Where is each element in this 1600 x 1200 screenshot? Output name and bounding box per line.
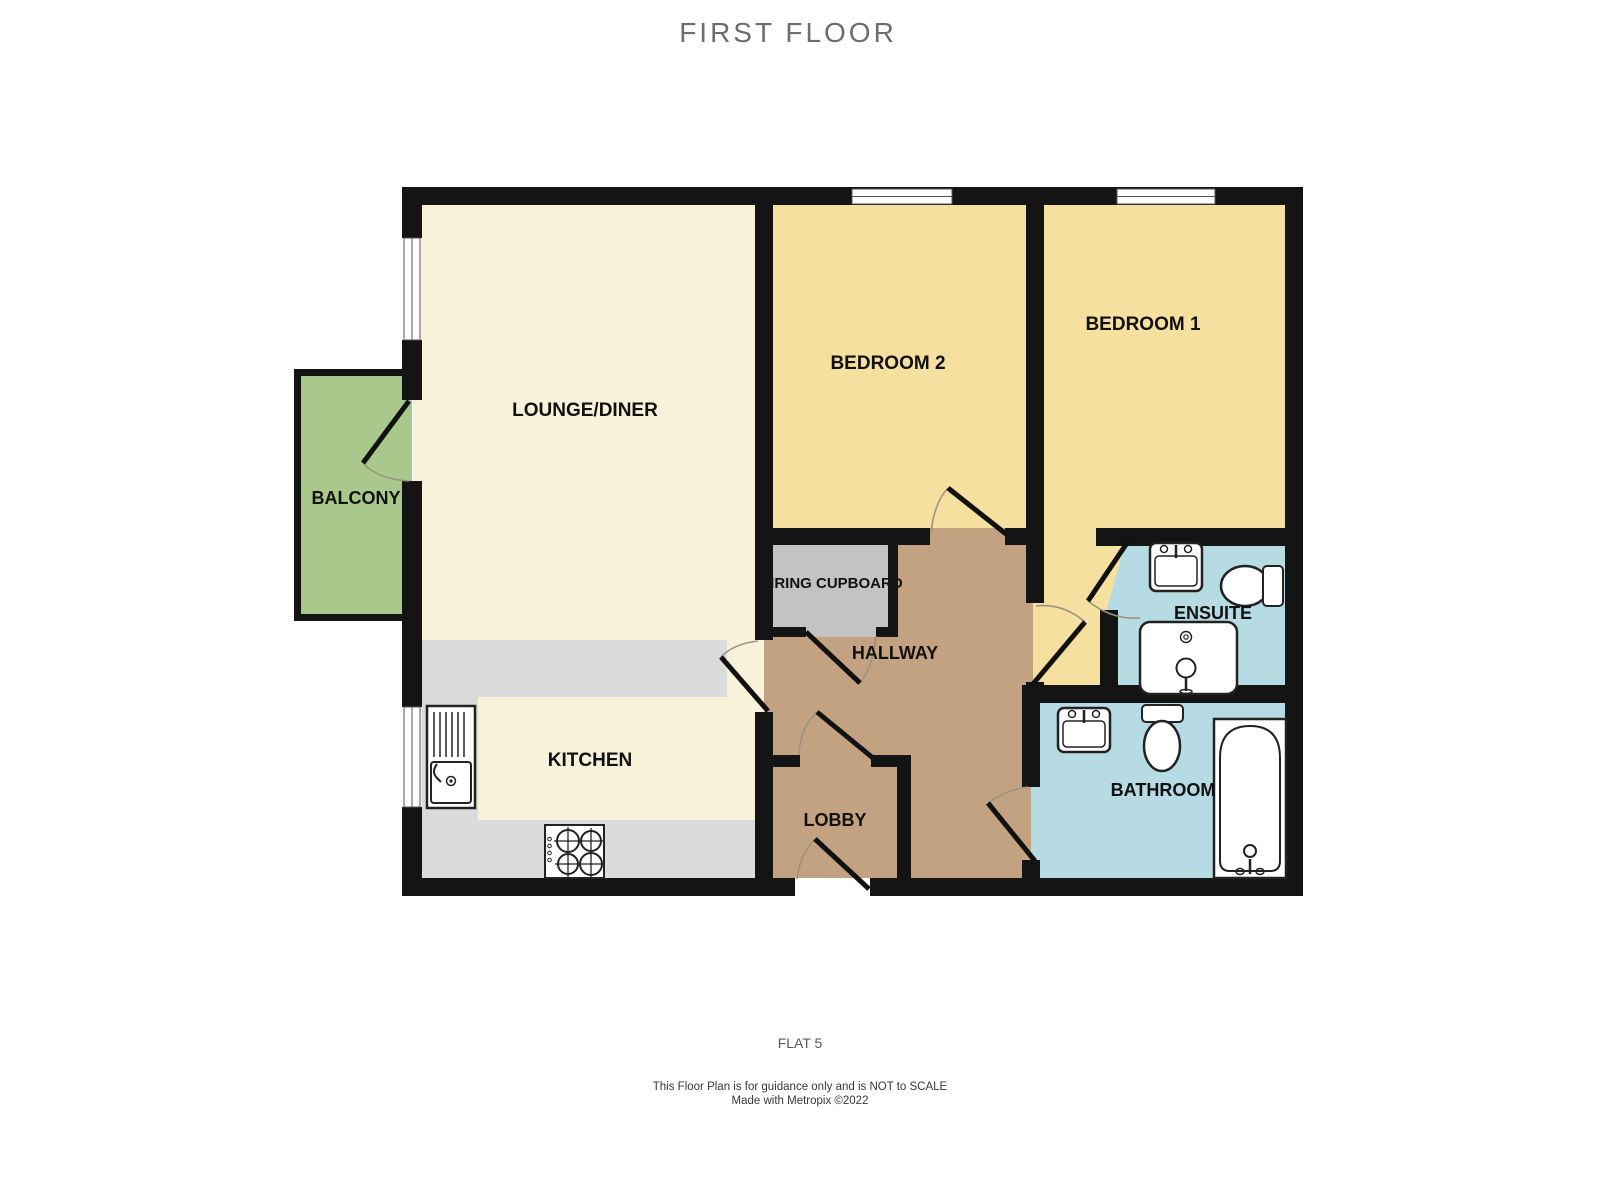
wall-bottom-left (402, 878, 795, 896)
room-label-ensuite: ENSUITE (1174, 603, 1252, 623)
kitchen-window (404, 707, 420, 807)
wall-kitchen-lobby (755, 712, 773, 878)
room-label-balcony: BALCONY (312, 488, 401, 508)
ensuite-toilet-icon (1221, 566, 1283, 606)
wall-cupboard-bottom-right (876, 627, 898, 637)
lounge-window (404, 238, 420, 340)
room-label-lounge: LOUNGE/DINER (512, 400, 658, 421)
ensuite-sink-icon (1150, 543, 1202, 591)
kitchen-sink-icon (427, 706, 475, 808)
wall-bottom-right (870, 878, 1303, 896)
room-label-lobby: LOBBY (804, 810, 867, 830)
bathroom-toilet-icon (1142, 705, 1183, 771)
wall-left-2 (402, 340, 422, 400)
bedroom1-window (1117, 189, 1215, 204)
bathtub-icon (1214, 719, 1286, 878)
room-label-bathroom: BATHROOM (1111, 780, 1216, 800)
room-label-hallway: HALLWAY (852, 643, 938, 663)
room-label-airing-cupboard: AIRING CUPBOARD (759, 575, 903, 592)
page-title: FIRST FLOOR (679, 17, 897, 48)
room-label-kitchen: KITCHEN (548, 750, 632, 771)
wall-lounge-hall-upper (755, 205, 773, 640)
wall-bathroom-left-upper (1022, 703, 1040, 787)
wall-cupboard-bottom-left (773, 627, 806, 637)
disclaimer-line1: This Floor Plan is for guidance only and… (653, 1081, 948, 1093)
room-label-bedroom2: BEDROOM 2 (830, 353, 945, 374)
wall-left-1 (402, 187, 422, 238)
wall-lobby-top-left (755, 755, 800, 767)
shower-icon (1140, 622, 1237, 694)
disclaimer-line2: Made with Metropix ©2022 (732, 1095, 869, 1107)
bedroom2-floor (755, 205, 1044, 546)
wall-right (1285, 187, 1303, 896)
bathroom-sink-icon (1058, 708, 1110, 752)
wall-cupboard-right (888, 528, 898, 637)
stove-icon (545, 825, 604, 878)
kitchen-counter-top (422, 640, 727, 697)
floor-plan-canvas: AIRING CUPBOARD (0, 0, 1600, 1200)
wall-left-3 (402, 481, 422, 707)
floor-plan-page: AIRING CUPBOARD (0, 0, 1600, 1200)
wall-bed2-bottom-right (1005, 528, 1044, 545)
bedroom2-window (852, 189, 952, 204)
wall-bed2-bottom-left (755, 528, 930, 545)
wall-left-4 (402, 807, 422, 896)
flat-number: FLAT 5 (778, 1035, 823, 1051)
room-label-bedroom1: BEDROOM 1 (1085, 314, 1201, 335)
wall-bathroom-left-lower (1022, 860, 1040, 878)
wall-ensuite-left (1100, 610, 1118, 694)
wall-lobby-right (897, 755, 911, 878)
